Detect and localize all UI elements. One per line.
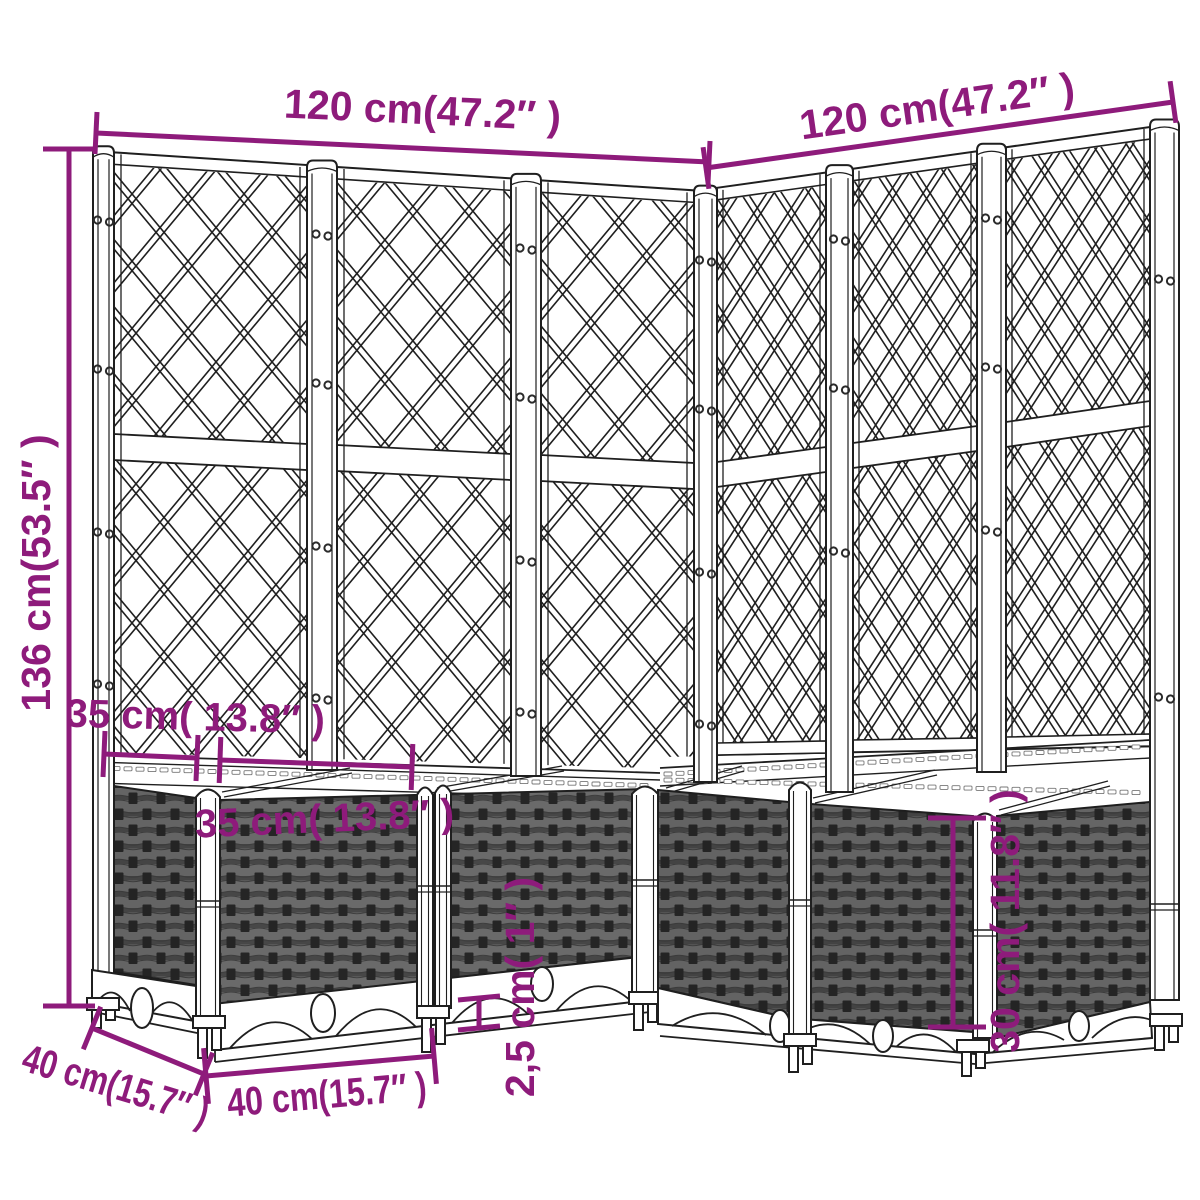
svg-text:30 cm( 11.8″ ): 30 cm( 11.8″ )	[982, 789, 1028, 1053]
svg-text:136 cm(53.5″ ): 136 cm(53.5″ )	[13, 434, 59, 711]
svg-text:35 cm( 13.8″ ): 35 cm( 13.8″ )	[65, 692, 325, 743]
svg-text:2,5 cm( 1″ ): 2,5 cm( 1″ )	[497, 877, 543, 1097]
